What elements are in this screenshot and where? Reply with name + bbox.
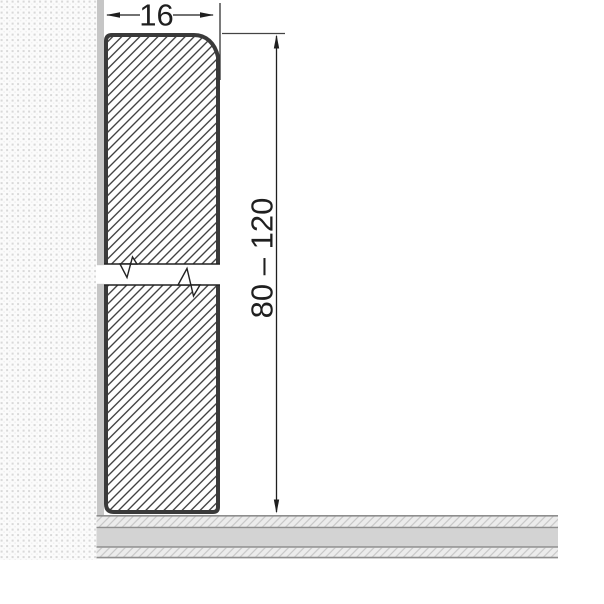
width-dimension-label: 16 — [139, 0, 173, 33]
skirting-board-lower-section — [106, 285, 218, 512]
height-dimension-label: 80 – 120 — [245, 198, 280, 319]
floor-bottom-screed-band — [97, 548, 559, 557]
floor-middle-solid-band — [97, 528, 559, 546]
floor-layers — [97, 516, 559, 558]
technical-drawing-canvas: 16 80 – 120 — [0, 0, 604, 604]
wall-surface-strip — [97, 0, 104, 516]
break-gap — [96, 265, 223, 284]
wall-dotted-texture — [0, 0, 97, 560]
wall — [0, 0, 104, 560]
floor-top-screed-band — [97, 517, 559, 528]
skirting-board-diagram: 16 80 – 120 — [0, 0, 604, 604]
skirting-board-upper-section — [106, 35, 218, 264]
